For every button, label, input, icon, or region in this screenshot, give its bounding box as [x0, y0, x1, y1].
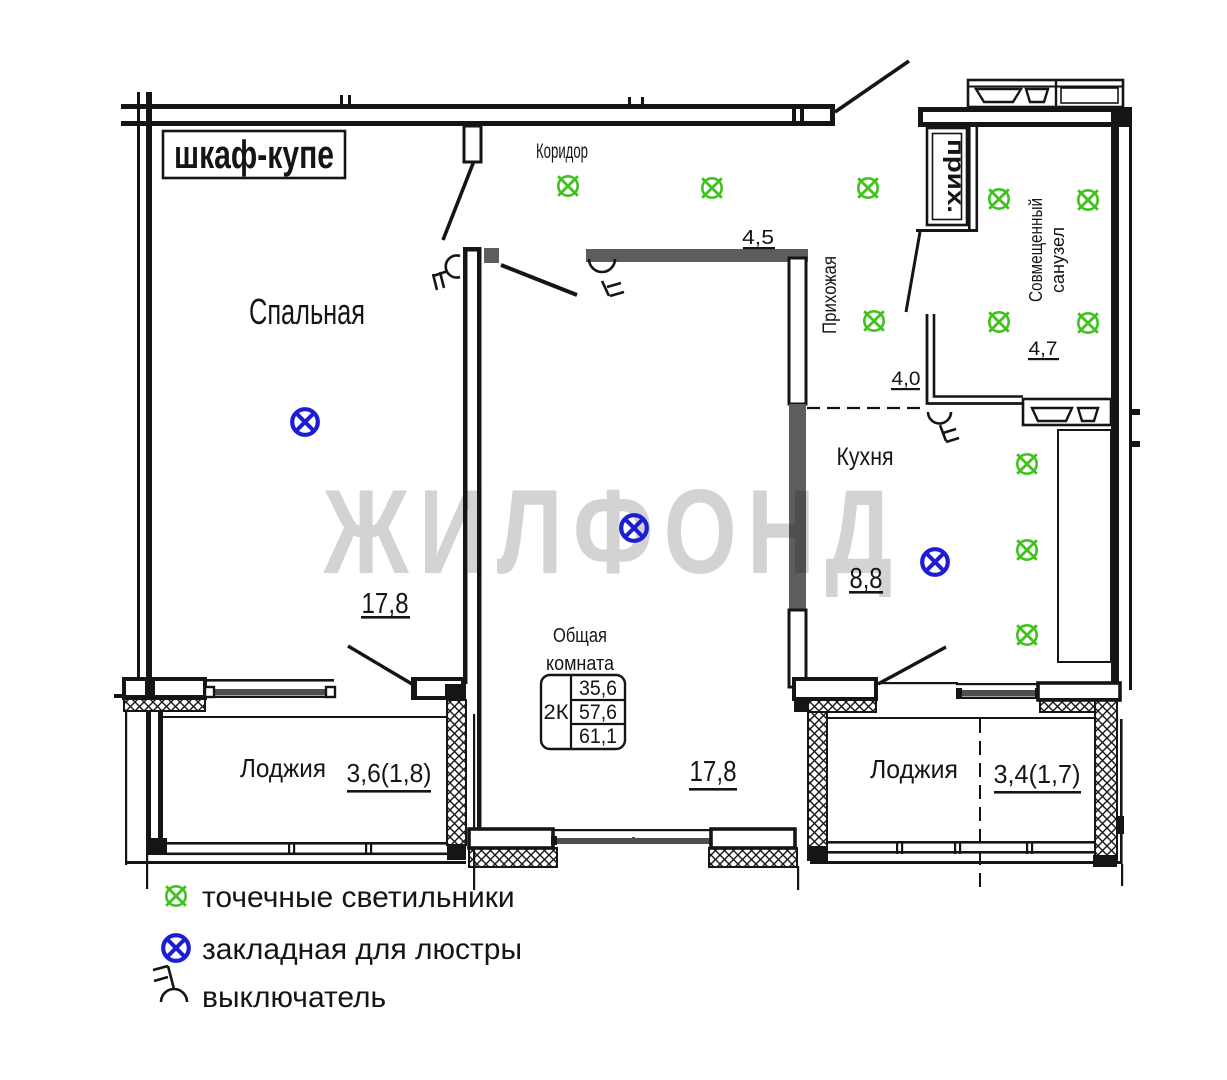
svg-text:4,0: 4,0	[892, 369, 921, 390]
svg-text:Лоджия: Лоджия	[870, 754, 958, 784]
svg-text:17,8: 17,8	[690, 756, 737, 788]
svg-text:шкаф-купе: шкаф-купе	[174, 133, 334, 177]
svg-text:Общая: Общая	[553, 625, 607, 647]
svg-text:3,4(1,7): 3,4(1,7)	[994, 759, 1081, 789]
svg-text:17,8: 17,8	[362, 588, 409, 620]
svg-text:4,7: 4,7	[1029, 339, 1058, 360]
svg-text:3,6(1,8): 3,6(1,8)	[347, 758, 432, 788]
svg-text:Кухня: Кухня	[837, 443, 894, 471]
svg-text:57,6: 57,6	[579, 701, 617, 724]
svg-text:35,6: 35,6	[579, 677, 617, 700]
svg-text:выключатель: выключатель	[202, 981, 386, 1014]
svg-text:прих.: прих.	[943, 139, 969, 213]
svg-text:закладная для люстры: закладная для люстры	[202, 933, 522, 966]
svg-text:санузел: санузел	[1048, 227, 1068, 293]
svg-text:2К: 2К	[544, 701, 570, 724]
svg-text:Прихожая: Прихожая	[820, 256, 841, 334]
svg-text:ЖИЛФОНД: ЖИЛФОНД	[323, 464, 903, 599]
svg-text:4,5: 4,5	[742, 227, 774, 249]
svg-text:Лоджия: Лоджия	[240, 753, 326, 783]
svg-text:8,8: 8,8	[850, 563, 883, 595]
svg-text:Спальная: Спальная	[249, 291, 365, 332]
svg-text:комната: комната	[546, 653, 615, 675]
svg-text:Коридор: Коридор	[536, 140, 588, 163]
svg-text:61,1: 61,1	[579, 725, 617, 748]
svg-text:точечные светильники: точечные светильники	[202, 881, 515, 914]
svg-text:Совмещенный: Совмещенный	[1026, 198, 1046, 302]
